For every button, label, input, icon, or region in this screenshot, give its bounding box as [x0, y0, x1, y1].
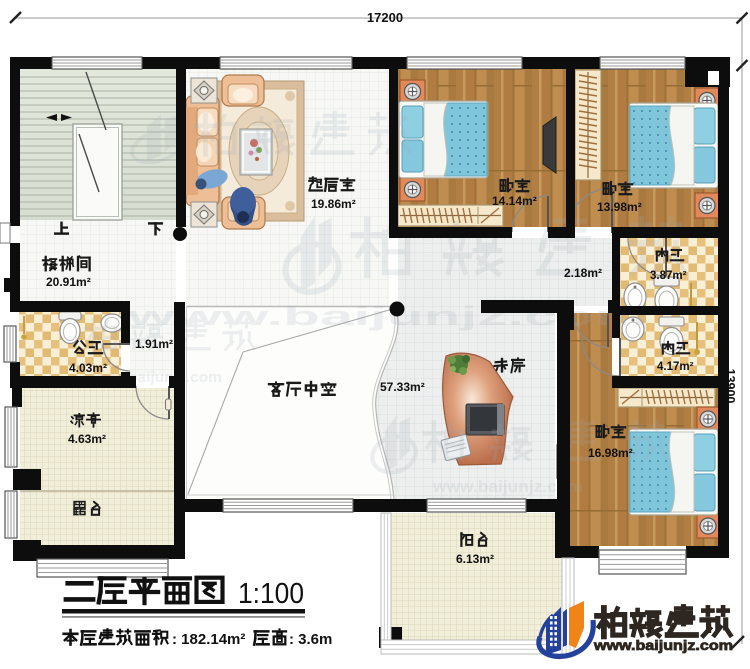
- svg-text:13.98m²: 13.98m²: [597, 200, 642, 214]
- svg-text:4.63m²: 4.63m²: [68, 432, 106, 446]
- svg-text:57.33m²: 57.33m²: [380, 380, 425, 394]
- svg-text:17200: 17200: [367, 10, 403, 25]
- svg-text:2.18m²: 2.18m²: [564, 266, 602, 280]
- svg-text:14.14m²: 14.14m²: [492, 194, 537, 208]
- svg-text:16.98m²: 16.98m²: [588, 446, 633, 460]
- svg-text:: 3.6m: : 3.6m: [289, 631, 332, 648]
- svg-text:20.91m²: 20.91m²: [46, 275, 91, 289]
- svg-text:: 182.14m²: : 182.14m²: [172, 631, 245, 648]
- svg-text:1:100: 1:100: [238, 578, 304, 610]
- svg-text:www.baijunjz.com: www.baijunjz.com: [593, 637, 733, 653]
- svg-text:4.17m²: 4.17m²: [657, 361, 694, 373]
- svg-text:19.86m²: 19.86m²: [311, 197, 356, 211]
- svg-text:3.87m²: 3.87m²: [650, 270, 687, 282]
- svg-text:6.13m²: 6.13m²: [456, 552, 494, 566]
- svg-text:1.91m²: 1.91m²: [135, 337, 173, 351]
- svg-text:4.03m²: 4.03m²: [69, 361, 107, 375]
